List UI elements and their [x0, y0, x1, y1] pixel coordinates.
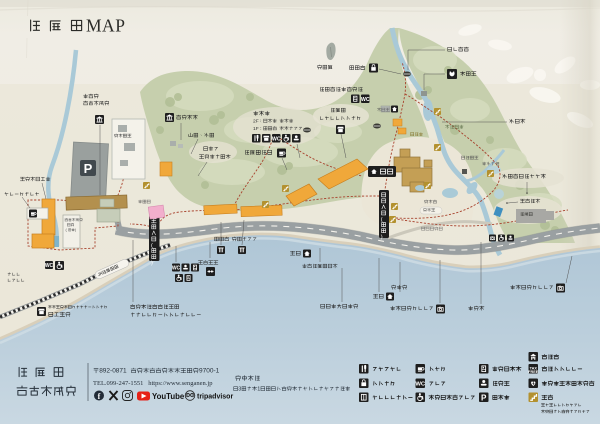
svg-text:): ) — [151, 261, 153, 267]
svg-text:WC: WC — [361, 97, 370, 103]
svg-text:WC: WC — [172, 265, 181, 271]
svg-text:): ) — [381, 235, 383, 241]
svg-text:P: P — [481, 393, 487, 402]
svg-text:tripadvisor: tripadvisor — [197, 394, 233, 401]
svg-text:1F: 1F — [253, 126, 259, 132]
svg-text:9700-1: 9700-1 — [199, 368, 220, 375]
svg-text:3: 3 — [238, 387, 241, 393]
svg-text:FREE: FREE — [528, 370, 539, 374]
svg-text:MAP: MAP — [86, 16, 125, 36]
svg-text:WC: WC — [45, 263, 54, 269]
svg-text:f: f — [98, 392, 101, 401]
svg-text:(: ( — [151, 243, 153, 249]
svg-text:WC: WC — [272, 136, 281, 142]
svg-text:WC: WC — [415, 382, 426, 388]
svg-text:2F: 2F — [253, 119, 259, 125]
svg-text:YouTube: YouTube — [152, 392, 185, 401]
svg-text:(: ( — [381, 217, 383, 223]
svg-text:TEL.099-247-1551 https://www: TEL.099-247-1551 https://www.senganen.jp — [93, 380, 212, 387]
svg-text:P: P — [84, 161, 93, 176]
svg-text:1: 1 — [257, 387, 260, 393]
svg-text:892-0871: 892-0871 — [99, 368, 127, 375]
